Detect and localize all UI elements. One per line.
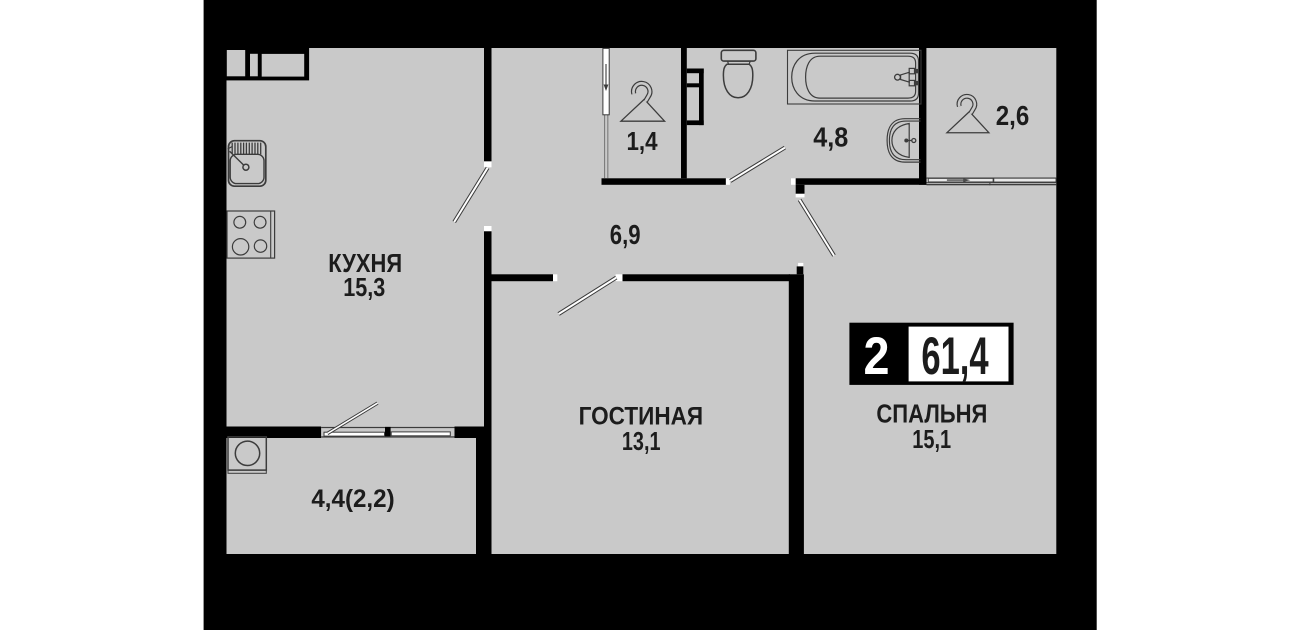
svg-text:15,1: 15,1 [912,424,951,454]
svg-text:2,6: 2,6 [996,100,1030,131]
svg-text:ГОСТИНАЯ: ГОСТИНАЯ [579,403,704,431]
svg-text:61,4: 61,4 [921,327,989,386]
svg-text:15,3: 15,3 [343,272,385,302]
svg-text:4,8: 4,8 [813,122,848,153]
svg-text:6,9: 6,9 [610,219,641,250]
svg-text:13,1: 13,1 [622,428,661,456]
svg-text:2: 2 [864,327,890,386]
svg-text:1,4: 1,4 [626,128,658,156]
svg-text:4,4(2,2): 4,4(2,2) [311,485,394,513]
